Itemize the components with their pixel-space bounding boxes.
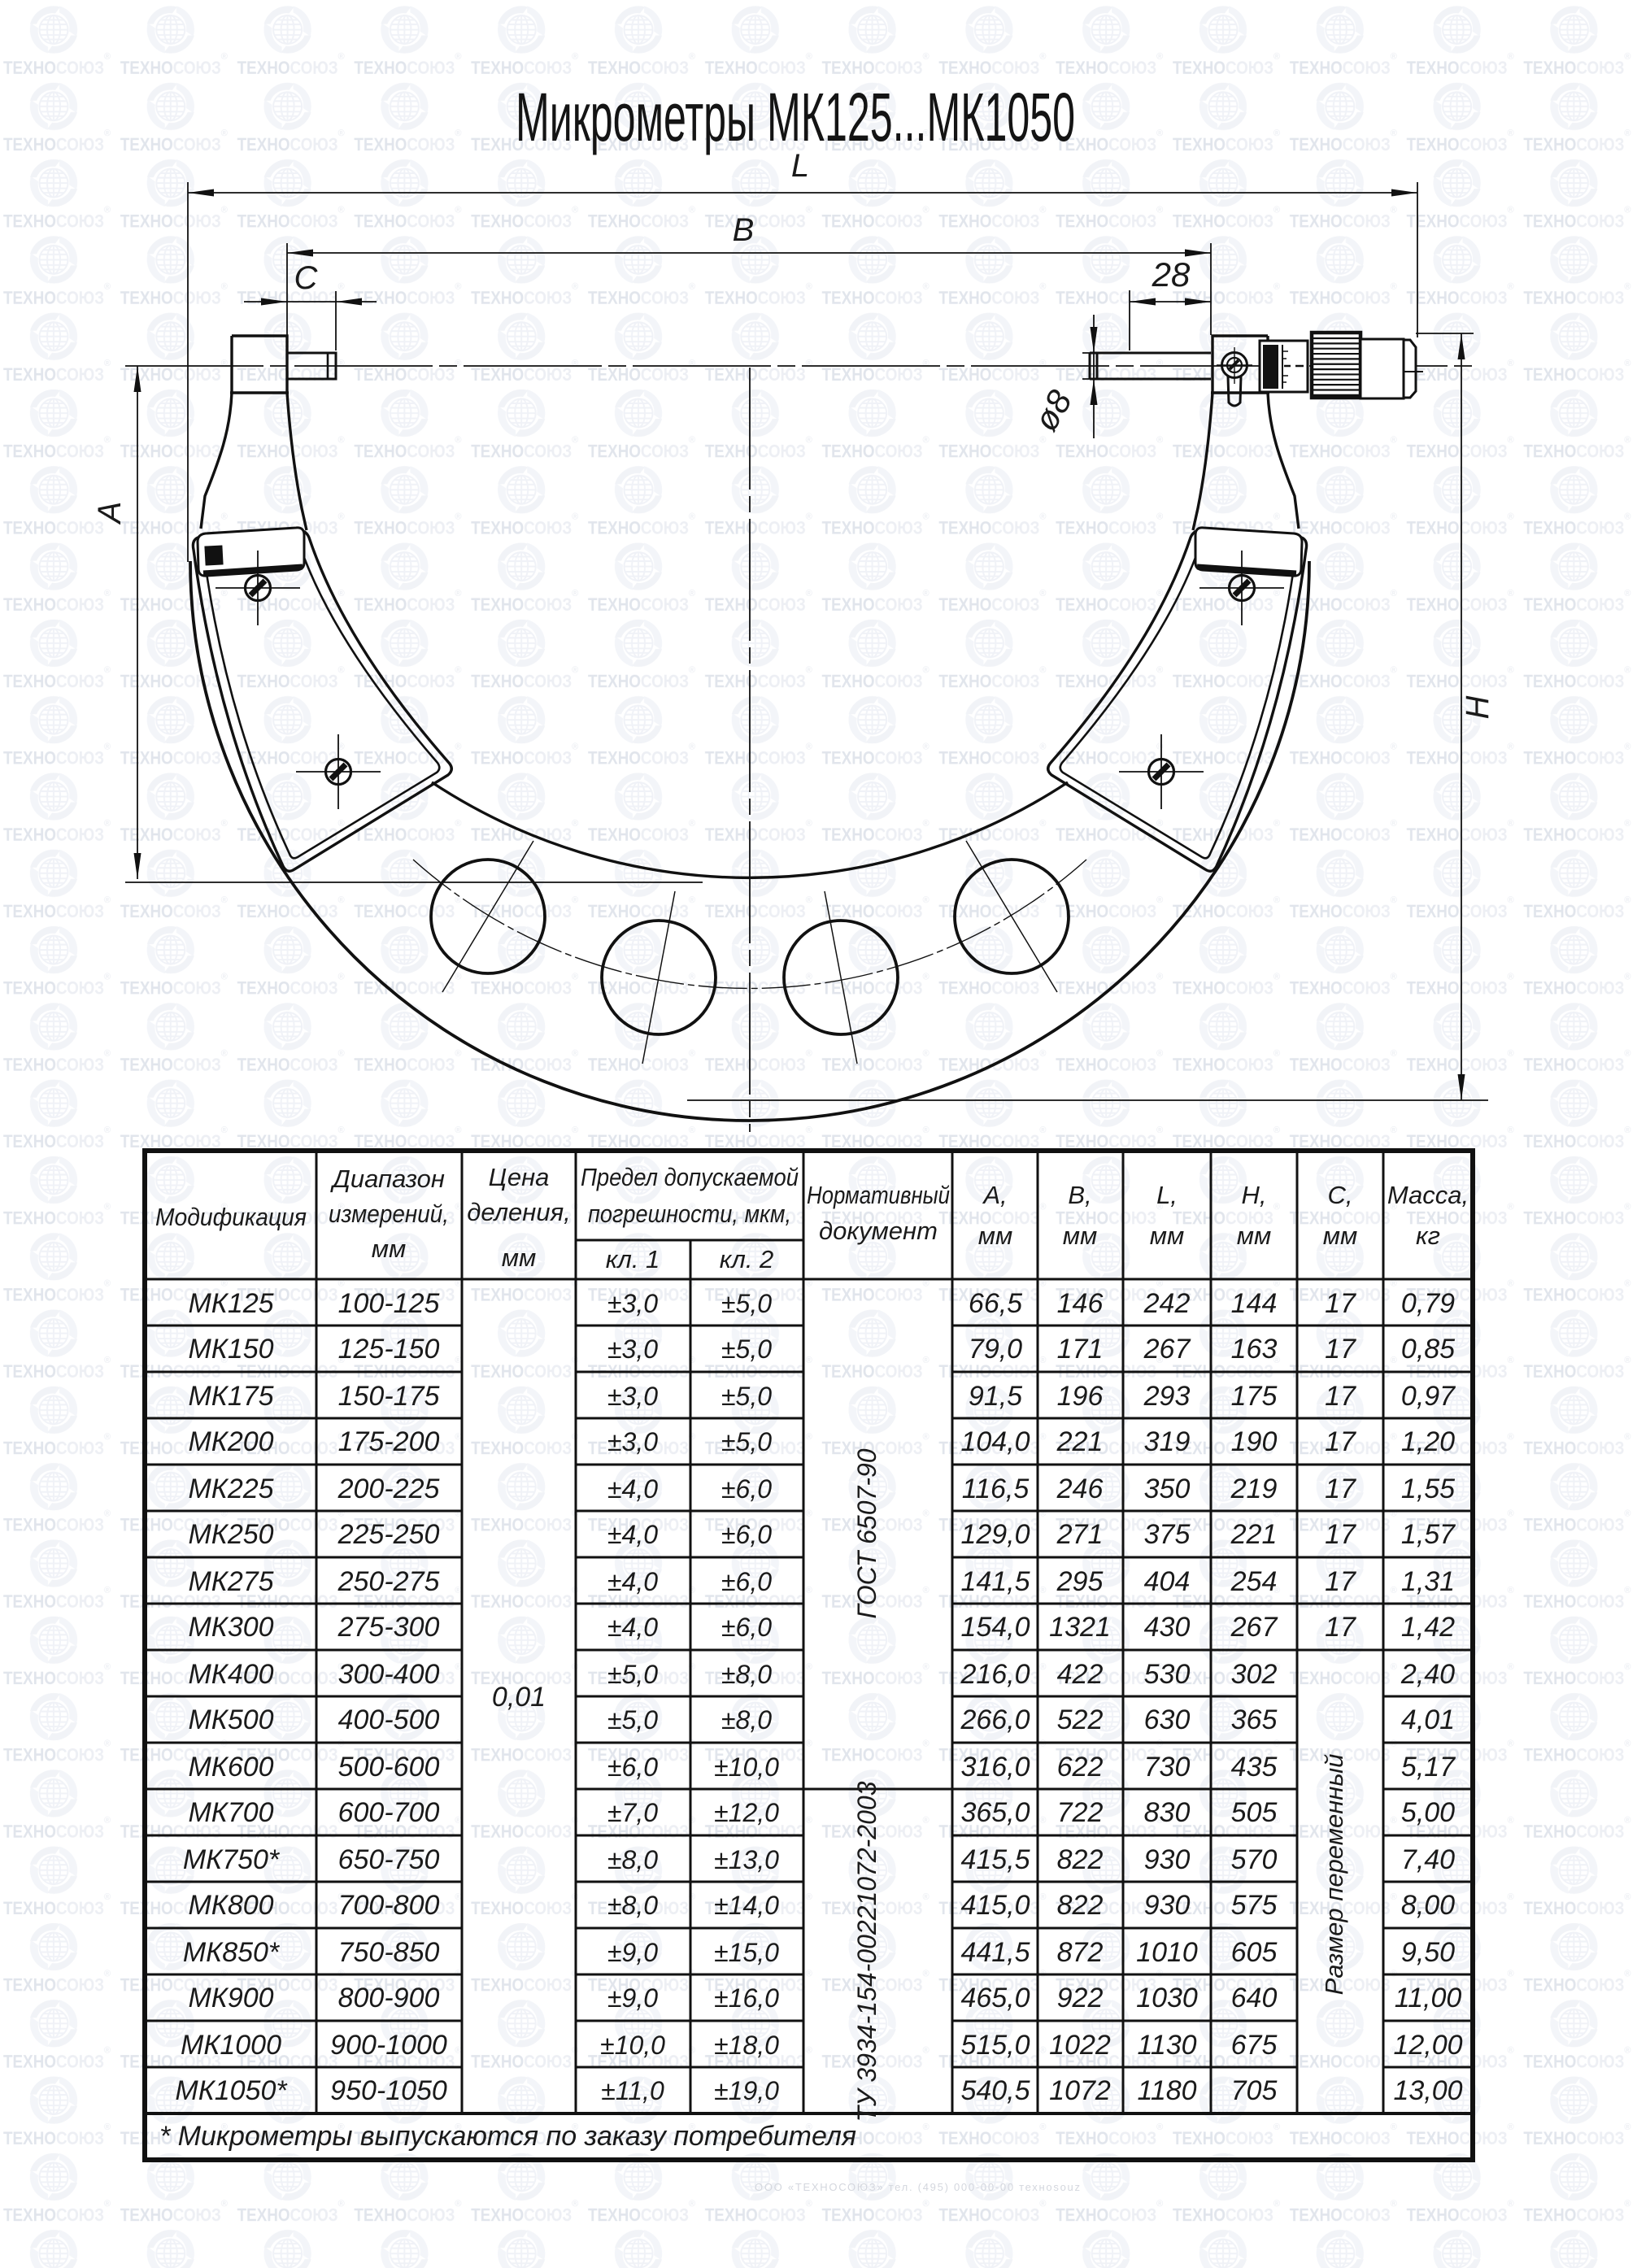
svg-text:документ: документ xyxy=(819,1217,938,1245)
svg-text:570: 570 xyxy=(1231,1844,1278,1875)
svg-text:МК300: МК300 xyxy=(188,1612,273,1643)
svg-text:522: 522 xyxy=(1057,1704,1104,1735)
svg-text:365,0: 365,0 xyxy=(960,1797,1030,1828)
svg-text:0,97: 0,97 xyxy=(1401,1381,1456,1412)
svg-text:150-175: 150-175 xyxy=(338,1381,440,1412)
svg-text:1,55: 1,55 xyxy=(1401,1474,1455,1504)
svg-text:600-700: 600-700 xyxy=(338,1797,440,1828)
svg-text:ГОСТ 6507-90: ГОСТ 6507-90 xyxy=(852,1448,882,1618)
svg-text:±6,0: ±6,0 xyxy=(721,1520,772,1549)
svg-text:922: 922 xyxy=(1057,1983,1104,2013)
svg-text:91,5: 91,5 xyxy=(969,1381,1022,1412)
svg-text:А,: А, xyxy=(982,1181,1007,1209)
svg-text:1,31: 1,31 xyxy=(1401,1566,1455,1597)
svg-text:540,5: 540,5 xyxy=(960,2075,1030,2106)
svg-text:±4,0: ±4,0 xyxy=(607,1613,658,1642)
svg-text:17: 17 xyxy=(1325,1334,1356,1365)
svg-text:13,00: 13,00 xyxy=(1393,2075,1462,2106)
svg-text:12,00: 12,00 xyxy=(1393,2030,1462,2061)
svg-text:675: 675 xyxy=(1231,2030,1278,2061)
svg-text:0,79: 0,79 xyxy=(1401,1288,1455,1319)
svg-text:кл. 1: кл. 1 xyxy=(606,1245,660,1273)
svg-text:225-250: 225-250 xyxy=(337,1519,440,1550)
svg-text:МК175: МК175 xyxy=(188,1381,273,1412)
svg-text:±7,0: ±7,0 xyxy=(607,1798,658,1827)
svg-text:295: 295 xyxy=(1056,1566,1104,1597)
svg-text:300-400: 300-400 xyxy=(338,1659,440,1690)
svg-text:530: 530 xyxy=(1144,1659,1191,1690)
svg-text:мм: мм xyxy=(1150,1221,1185,1250)
svg-text:154,0: 154,0 xyxy=(960,1612,1030,1643)
svg-text:±5,0: ±5,0 xyxy=(607,1705,658,1735)
svg-text:Размер переменный: Размер переменный xyxy=(1320,1754,1348,1996)
svg-text:129,0: 129,0 xyxy=(960,1519,1030,1550)
svg-text:302: 302 xyxy=(1231,1659,1278,1690)
svg-text:±6,0: ±6,0 xyxy=(607,1752,658,1782)
svg-text:1,42: 1,42 xyxy=(1401,1612,1455,1643)
svg-text:±9,0: ±9,0 xyxy=(607,1983,658,2013)
svg-text:±15,0: ±15,0 xyxy=(714,1938,779,1967)
svg-text:Модификация: Модификация xyxy=(155,1203,307,1231)
svg-text:Масса,: Масса, xyxy=(1387,1181,1469,1209)
svg-text:200-225: 200-225 xyxy=(337,1474,440,1504)
svg-text:МК400: МК400 xyxy=(188,1659,273,1690)
svg-text:730: 730 xyxy=(1144,1752,1191,1783)
svg-text:267: 267 xyxy=(1230,1612,1278,1643)
svg-text:830: 830 xyxy=(1144,1797,1191,1828)
svg-text:МК275: МК275 xyxy=(188,1566,273,1597)
svg-text:4,01: 4,01 xyxy=(1401,1704,1455,1735)
svg-text:316,0: 316,0 xyxy=(960,1752,1030,1783)
svg-text:17: 17 xyxy=(1325,1566,1356,1597)
svg-text:125-150: 125-150 xyxy=(338,1334,440,1365)
svg-text:±9,0: ±9,0 xyxy=(607,1938,658,1967)
svg-text:±3,0: ±3,0 xyxy=(607,1289,658,1318)
svg-text:267: 267 xyxy=(1143,1334,1191,1365)
svg-text:5,17: 5,17 xyxy=(1401,1752,1456,1783)
svg-text:0,01: 0,01 xyxy=(492,1682,546,1713)
svg-text:822: 822 xyxy=(1057,1890,1104,1921)
svg-text:605: 605 xyxy=(1231,1937,1278,1968)
svg-text:±4,0: ±4,0 xyxy=(607,1567,658,1596)
svg-text:400-500: 400-500 xyxy=(338,1704,440,1735)
svg-text:мм: мм xyxy=(372,1234,407,1263)
svg-text:Предел допускаемой: Предел допускаемой xyxy=(581,1163,799,1191)
svg-text:104,0: 104,0 xyxy=(960,1426,1030,1457)
svg-text:С,: С, xyxy=(1328,1181,1353,1209)
svg-text:800-900: 800-900 xyxy=(338,1983,440,2013)
svg-text:700-800: 700-800 xyxy=(338,1890,440,1921)
svg-text:±4,0: ±4,0 xyxy=(607,1474,658,1504)
svg-text:±5,0: ±5,0 xyxy=(721,1427,772,1456)
svg-text:17: 17 xyxy=(1325,1612,1356,1643)
svg-text:415,5: 415,5 xyxy=(960,1844,1030,1875)
svg-text:116,5: 116,5 xyxy=(962,1474,1030,1504)
svg-text:219: 219 xyxy=(1230,1474,1278,1504)
svg-text:±4,0: ±4,0 xyxy=(607,1520,658,1549)
svg-text:293: 293 xyxy=(1143,1381,1191,1412)
svg-text:375: 375 xyxy=(1144,1519,1191,1550)
svg-text:ТУ 3934-154-00221072-2003: ТУ 3934-154-00221072-2003 xyxy=(852,1781,882,2122)
svg-text:622: 622 xyxy=(1057,1752,1104,1783)
svg-text:L,: L, xyxy=(1156,1181,1178,1209)
svg-text:кг: кг xyxy=(1416,1221,1440,1250)
svg-text:±13,0: ±13,0 xyxy=(714,1845,779,1874)
svg-text:МК250: МК250 xyxy=(188,1519,273,1550)
svg-text:±8,0: ±8,0 xyxy=(607,1845,658,1874)
svg-text:79,0: 79,0 xyxy=(969,1334,1022,1365)
svg-text:221: 221 xyxy=(1230,1519,1278,1550)
svg-text:0,85: 0,85 xyxy=(1401,1334,1455,1365)
svg-text:17: 17 xyxy=(1325,1288,1356,1319)
svg-text:МК800: МК800 xyxy=(188,1890,273,1921)
svg-text:±6,0: ±6,0 xyxy=(721,1613,772,1642)
svg-text:МК600: МК600 xyxy=(188,1752,273,1783)
svg-text:640: 640 xyxy=(1231,1983,1278,2013)
svg-text:±12,0: ±12,0 xyxy=(714,1798,779,1827)
svg-text:8,00: 8,00 xyxy=(1401,1890,1455,1921)
svg-text:221: 221 xyxy=(1056,1426,1104,1457)
svg-text:900-1000: 900-1000 xyxy=(330,2030,447,2061)
svg-text:1022: 1022 xyxy=(1049,2030,1111,2061)
svg-text:17: 17 xyxy=(1325,1474,1356,1504)
svg-text:кл. 2: кл. 2 xyxy=(720,1245,774,1273)
svg-text:±10,0: ±10,0 xyxy=(600,2031,665,2060)
svg-text:1,57: 1,57 xyxy=(1401,1519,1456,1550)
svg-text:±5,0: ±5,0 xyxy=(607,1660,658,1689)
svg-text:МК700: МК700 xyxy=(188,1797,273,1828)
svg-text:415,0: 415,0 xyxy=(960,1890,1030,1921)
svg-text:175: 175 xyxy=(1231,1381,1278,1412)
svg-text:930: 930 xyxy=(1144,1844,1191,1875)
svg-text:±8,0: ±8,0 xyxy=(721,1705,772,1735)
svg-text:±5,0: ±5,0 xyxy=(721,1334,772,1364)
svg-text:±3,0: ±3,0 xyxy=(607,1427,658,1456)
svg-text:254: 254 xyxy=(1230,1566,1278,1597)
svg-text:1,20: 1,20 xyxy=(1401,1426,1455,1457)
svg-text:28: 28 xyxy=(1152,255,1191,294)
svg-text:365: 365 xyxy=(1231,1704,1278,1735)
svg-text:1072: 1072 xyxy=(1049,2075,1111,2106)
svg-text:422: 422 xyxy=(1057,1659,1104,1690)
svg-text:750-850: 750-850 xyxy=(338,1937,440,1968)
svg-text:±19,0: ±19,0 xyxy=(714,2076,779,2105)
svg-text:мм: мм xyxy=(1063,1221,1098,1250)
svg-text:МК1000: МК1000 xyxy=(181,2030,281,2061)
svg-text:216,0: 216,0 xyxy=(960,1659,1030,1690)
svg-text:196: 196 xyxy=(1057,1381,1104,1412)
svg-text:±11,0: ±11,0 xyxy=(601,2076,664,2105)
svg-text:950-1050: 950-1050 xyxy=(330,2075,447,2106)
svg-text:5,00: 5,00 xyxy=(1401,1797,1455,1828)
svg-text:±6,0: ±6,0 xyxy=(721,1567,772,1596)
svg-text:175-200: 175-200 xyxy=(338,1426,440,1457)
svg-text:171: 171 xyxy=(1057,1334,1104,1365)
svg-text:705: 705 xyxy=(1231,2075,1278,2106)
svg-text:деления,: деления, xyxy=(467,1198,571,1226)
svg-text:МК900: МК900 xyxy=(188,1983,273,2013)
svg-text:11,00: 11,00 xyxy=(1395,1983,1462,2013)
svg-text:500-600: 500-600 xyxy=(338,1752,440,1783)
svg-text:В,: В, xyxy=(1068,1181,1091,1209)
svg-text:МК1050*: МК1050* xyxy=(175,2075,288,2106)
svg-text:±10,0: ±10,0 xyxy=(714,1752,779,1782)
svg-text:Диапазон: Диапазон xyxy=(330,1164,445,1193)
svg-text:17: 17 xyxy=(1325,1519,1356,1550)
svg-text:МК150: МК150 xyxy=(188,1334,273,1365)
svg-text:515,0: 515,0 xyxy=(960,2030,1030,2061)
svg-text:430: 430 xyxy=(1144,1612,1191,1643)
svg-text:* Микрометры выпускаются по за: * Микрометры выпускаются по заказу потре… xyxy=(159,2121,856,2152)
svg-text:465,0: 465,0 xyxy=(960,1983,1030,2013)
svg-text:822: 822 xyxy=(1057,1844,1104,1875)
svg-text:722: 722 xyxy=(1057,1797,1104,1828)
svg-text:погрешности, мкм,: погрешности, мкм, xyxy=(588,1199,791,1228)
svg-text:163: 163 xyxy=(1231,1334,1278,1365)
svg-text:Микрометры МК125...МК1050: Микрометры МК125...МК1050 xyxy=(516,79,1075,155)
svg-text:242: 242 xyxy=(1143,1288,1191,1319)
svg-text:1010: 1010 xyxy=(1136,1937,1198,1968)
svg-text:650-750: 650-750 xyxy=(338,1844,440,1875)
svg-text:146: 146 xyxy=(1057,1288,1104,1319)
svg-text:250-275: 250-275 xyxy=(337,1566,440,1597)
svg-text:мм: мм xyxy=(978,1221,1013,1250)
svg-text:350: 350 xyxy=(1144,1474,1191,1504)
svg-text:МК750*: МК750* xyxy=(183,1844,281,1875)
svg-text:L: L xyxy=(791,148,809,184)
svg-text:66,5: 66,5 xyxy=(969,1288,1022,1319)
svg-text:246: 246 xyxy=(1056,1474,1104,1504)
svg-text:±5,0: ±5,0 xyxy=(721,1289,772,1318)
svg-text:±18,0: ±18,0 xyxy=(714,2031,779,2060)
svg-text:Н,: Н, xyxy=(1242,1181,1267,1209)
svg-text:275-300: 275-300 xyxy=(337,1612,440,1643)
svg-text:±8,0: ±8,0 xyxy=(607,1891,658,1920)
svg-text:МК850*: МК850* xyxy=(183,1937,281,1968)
svg-text:±14,0: ±14,0 xyxy=(714,1891,779,1920)
svg-text:мм: мм xyxy=(1237,1221,1272,1250)
svg-text:441,5: 441,5 xyxy=(960,1937,1030,1968)
svg-text:190: 190 xyxy=(1231,1426,1278,1457)
svg-text:±3,0: ±3,0 xyxy=(607,1334,658,1364)
svg-text:1180: 1180 xyxy=(1137,2075,1196,2106)
svg-text:мм: мм xyxy=(1323,1221,1358,1250)
svg-text:271: 271 xyxy=(1056,1519,1104,1550)
svg-text:17: 17 xyxy=(1325,1381,1356,1412)
svg-text:H: H xyxy=(1460,695,1496,719)
svg-text:930: 930 xyxy=(1144,1890,1191,1921)
svg-text:7,40: 7,40 xyxy=(1401,1844,1455,1875)
svg-text:±6,0: ±6,0 xyxy=(721,1474,772,1504)
svg-text:A: A xyxy=(92,502,128,525)
svg-text:Цена: Цена xyxy=(489,1163,550,1191)
svg-text:141,5: 141,5 xyxy=(960,1566,1030,1597)
svg-text:измерений,: измерений, xyxy=(329,1199,449,1228)
svg-text:144: 144 xyxy=(1231,1288,1278,1319)
svg-text:мм: мм xyxy=(502,1243,537,1272)
svg-text:2,40: 2,40 xyxy=(1400,1659,1455,1690)
svg-text:1030: 1030 xyxy=(1136,1983,1198,2013)
svg-text:505: 505 xyxy=(1231,1797,1278,1828)
svg-text:630: 630 xyxy=(1144,1704,1191,1735)
svg-text:319: 319 xyxy=(1144,1426,1191,1457)
svg-text:B: B xyxy=(733,212,755,248)
svg-text:МК225: МК225 xyxy=(188,1474,273,1504)
svg-text:МК125: МК125 xyxy=(188,1288,273,1319)
svg-text:266,0: 266,0 xyxy=(960,1704,1030,1735)
svg-text:100-125: 100-125 xyxy=(338,1288,440,1319)
svg-text:1130: 1130 xyxy=(1137,2030,1196,2061)
svg-text:404: 404 xyxy=(1144,1566,1191,1597)
svg-text:±3,0: ±3,0 xyxy=(607,1382,658,1411)
svg-text:МК500: МК500 xyxy=(188,1704,273,1735)
svg-text:435: 435 xyxy=(1231,1752,1278,1783)
svg-text:575: 575 xyxy=(1231,1890,1278,1921)
svg-text:±8,0: ±8,0 xyxy=(721,1660,772,1689)
svg-text:17: 17 xyxy=(1325,1426,1356,1457)
svg-text:Нормативный: Нормативный xyxy=(807,1181,950,1209)
svg-text:C: C xyxy=(294,260,319,296)
svg-text:±5,0: ±5,0 xyxy=(721,1382,772,1411)
svg-text:1321: 1321 xyxy=(1049,1612,1111,1643)
svg-text:МК200: МК200 xyxy=(188,1426,273,1457)
svg-text:±16,0: ±16,0 xyxy=(714,1983,779,2013)
svg-text:872: 872 xyxy=(1057,1937,1104,1968)
svg-text:9,50: 9,50 xyxy=(1401,1937,1455,1968)
